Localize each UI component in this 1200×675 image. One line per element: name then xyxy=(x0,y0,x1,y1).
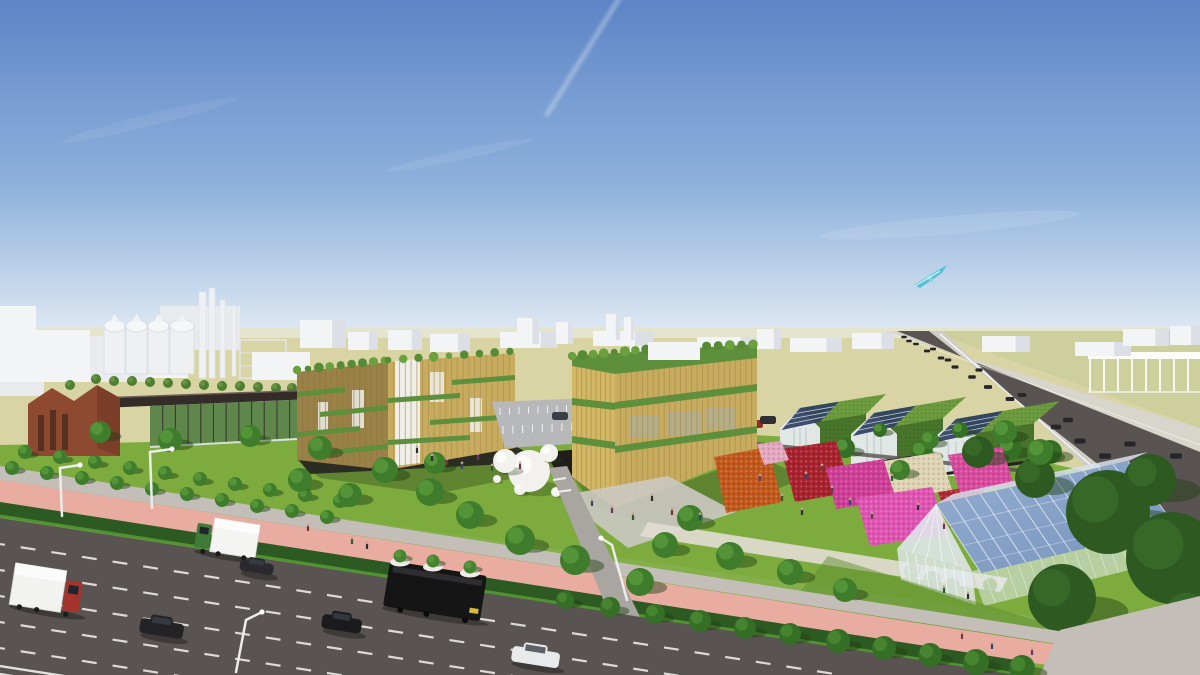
tree-highlight xyxy=(89,456,97,464)
person-head xyxy=(416,446,419,449)
highway-car xyxy=(975,368,982,371)
person xyxy=(591,501,593,506)
person-head xyxy=(591,499,594,502)
terrace-tree xyxy=(236,382,241,387)
person xyxy=(651,496,653,501)
highway-car xyxy=(1099,453,1111,458)
silo xyxy=(170,326,194,374)
roof-shrub xyxy=(325,362,334,371)
roof-shrub xyxy=(476,350,484,358)
roof-shrub xyxy=(578,350,588,360)
roof-shrub xyxy=(399,355,407,363)
highway-car xyxy=(1006,397,1015,401)
tree-highlight xyxy=(286,505,294,513)
terrace-tree xyxy=(200,381,205,386)
tree-highlight xyxy=(321,511,329,519)
tree-highlight xyxy=(111,477,119,485)
highway-car xyxy=(906,340,912,342)
person-head xyxy=(961,632,964,635)
highway-car xyxy=(945,359,952,362)
person xyxy=(967,594,969,599)
background-building-shade xyxy=(541,332,558,348)
person-head xyxy=(632,513,635,516)
person xyxy=(1031,650,1033,655)
person-head xyxy=(821,464,824,467)
highway-car xyxy=(938,357,944,360)
roof-shrub xyxy=(748,339,757,348)
sphere-highlight xyxy=(494,476,498,480)
person xyxy=(781,496,783,501)
tree-highlight xyxy=(507,527,524,544)
tree-highlight xyxy=(1029,441,1043,455)
person xyxy=(943,524,945,529)
person-head xyxy=(1031,648,1034,651)
background-building-shade xyxy=(568,322,573,344)
tree-highlight xyxy=(251,500,259,508)
terrace-tree xyxy=(288,384,293,389)
terrace-tree xyxy=(218,382,223,387)
background-building-shade xyxy=(532,318,539,344)
tree-highlight xyxy=(964,438,982,456)
tree-highlight xyxy=(41,467,49,475)
person xyxy=(366,544,368,549)
roof-shrub xyxy=(490,348,499,357)
person xyxy=(307,526,309,531)
highway-car xyxy=(1063,418,1073,422)
person xyxy=(871,514,873,519)
roof-shrub xyxy=(369,357,378,366)
roof-shrub xyxy=(599,348,609,358)
background-building-shade xyxy=(1191,326,1200,345)
person xyxy=(416,448,418,453)
sky xyxy=(0,0,1200,340)
sphere-highlight xyxy=(552,488,557,493)
person xyxy=(961,634,963,639)
sphere-highlight xyxy=(516,485,521,490)
person xyxy=(351,539,353,544)
tree-highlight xyxy=(394,550,401,557)
background-building-shade xyxy=(881,333,894,349)
tree-highlight xyxy=(310,438,323,451)
person-head xyxy=(943,586,946,589)
tree-highlight xyxy=(91,423,103,435)
background-building-shade xyxy=(1155,329,1169,346)
tower-column xyxy=(220,300,225,378)
lamp-head xyxy=(169,446,174,451)
highway-car xyxy=(968,375,976,378)
roof-shrub xyxy=(337,361,345,369)
roof-shrub xyxy=(568,352,576,360)
tree-highlight xyxy=(194,473,202,481)
person xyxy=(991,644,993,649)
highway-car xyxy=(1124,441,1135,446)
roof-shrub xyxy=(314,363,324,373)
roof-shrub xyxy=(460,350,469,359)
roof-shrub xyxy=(385,357,392,364)
tree-highlight xyxy=(458,503,473,518)
tree-highlight xyxy=(1011,657,1025,671)
person xyxy=(917,505,919,510)
roof-shrub xyxy=(737,341,745,349)
tower-column xyxy=(209,288,215,378)
sphere-highlight xyxy=(496,452,507,463)
sphere-highlight xyxy=(542,446,550,454)
person xyxy=(831,488,833,493)
highway-car xyxy=(913,343,919,346)
person-head xyxy=(431,454,434,457)
person-head xyxy=(991,642,994,645)
background-building-shade xyxy=(774,329,781,349)
tower-column xyxy=(232,306,236,376)
person xyxy=(805,474,807,479)
person xyxy=(431,456,433,461)
person-head xyxy=(849,498,852,501)
person-head xyxy=(801,508,804,511)
person xyxy=(611,508,613,513)
person-head xyxy=(759,474,762,477)
tree-highlight xyxy=(835,580,848,593)
roof-shrub xyxy=(589,350,598,359)
tree-highlight xyxy=(965,651,979,665)
tree-highlight xyxy=(6,462,14,470)
person xyxy=(943,588,945,593)
highway-car xyxy=(1051,425,1061,430)
silos xyxy=(104,314,194,374)
tree-highlight xyxy=(781,625,793,637)
terrace-tree xyxy=(92,375,97,380)
person-head xyxy=(611,506,614,509)
person-head xyxy=(917,503,920,506)
terrace-tree xyxy=(66,381,71,386)
tree-highlight xyxy=(427,555,434,562)
glass-interior xyxy=(630,415,660,437)
tree-highlight xyxy=(691,612,703,624)
highway-car xyxy=(901,336,906,338)
tree-highlight xyxy=(953,423,962,432)
background-building-shade xyxy=(332,320,346,348)
tree-highlight xyxy=(828,631,841,644)
silo xyxy=(126,326,147,374)
tree-highlight xyxy=(124,462,132,470)
silo xyxy=(104,326,125,374)
tree-highlight xyxy=(1133,519,1184,570)
rooftop-plant-room xyxy=(648,342,700,360)
person-head xyxy=(491,464,494,467)
person-head xyxy=(307,524,310,527)
highway-car xyxy=(1170,453,1182,458)
person-head xyxy=(699,513,702,516)
roof-shrub xyxy=(620,346,630,356)
person-head xyxy=(651,494,654,497)
person xyxy=(821,466,823,471)
tree-highlight xyxy=(995,422,1008,435)
person xyxy=(759,476,761,481)
highway-car xyxy=(930,348,936,351)
sky-gradient xyxy=(0,0,1200,340)
roof-shrub xyxy=(611,349,618,356)
background-building-shade xyxy=(1016,336,1030,352)
lamp-head xyxy=(259,609,264,614)
tree-highlight xyxy=(1128,458,1157,487)
person-head xyxy=(891,474,894,477)
windshield xyxy=(199,527,209,535)
tree-highlight xyxy=(181,488,189,496)
tree-highlight xyxy=(679,507,693,521)
tree-highlight xyxy=(76,472,84,480)
roof-shrub xyxy=(305,366,311,372)
person xyxy=(671,510,673,515)
person-head xyxy=(871,512,874,515)
background-building-shade xyxy=(458,334,470,352)
tree-highlight xyxy=(736,619,748,631)
highway-car xyxy=(1018,393,1027,397)
highway-car xyxy=(1074,439,1085,444)
background-building-shade xyxy=(369,332,378,350)
tree-highlight xyxy=(920,645,933,658)
tree-highlight xyxy=(160,430,173,443)
silo xyxy=(148,326,169,374)
person xyxy=(632,515,634,520)
tree-highlight xyxy=(779,561,793,575)
tree-highlight xyxy=(647,606,658,617)
person-head xyxy=(477,453,480,456)
tree-highlight xyxy=(464,561,471,568)
tree-highlight xyxy=(557,592,567,602)
roof-shrub xyxy=(702,342,711,351)
person-head xyxy=(519,462,522,465)
person xyxy=(446,460,448,465)
parked-car xyxy=(760,416,776,424)
tree-highlight xyxy=(718,544,733,559)
terrace-tree xyxy=(182,380,187,385)
person xyxy=(461,464,463,469)
person-head xyxy=(671,508,674,511)
tree-highlight xyxy=(628,570,643,585)
person-head xyxy=(461,462,464,465)
roof-shrub xyxy=(506,348,513,355)
lamp-head xyxy=(77,462,82,467)
glass-interior xyxy=(706,408,736,430)
terrace-tree xyxy=(146,378,151,383)
terrace-tree xyxy=(128,377,133,382)
background-building-shade xyxy=(616,314,620,340)
lamp-head xyxy=(598,535,603,540)
tree-highlight xyxy=(229,478,237,486)
roof-shrub xyxy=(725,340,735,350)
tree-highlight xyxy=(1033,569,1070,606)
tree-highlight xyxy=(159,467,167,475)
tree-highlight xyxy=(241,427,253,439)
highway-car xyxy=(952,365,959,368)
person xyxy=(801,510,803,515)
tree-highlight xyxy=(19,446,27,454)
terrace-tree xyxy=(254,383,259,388)
highway-car xyxy=(984,385,992,389)
person-head xyxy=(446,458,449,461)
roof-shrub xyxy=(429,352,439,362)
person-head xyxy=(831,486,834,489)
roof-shrub xyxy=(714,341,723,350)
tree-highlight xyxy=(654,534,668,548)
tree-highlight xyxy=(602,599,613,610)
terrace-tree xyxy=(164,379,169,384)
person-head xyxy=(781,494,784,497)
person xyxy=(519,464,521,469)
person xyxy=(491,466,493,471)
tree-highlight xyxy=(892,462,903,473)
tree-highlight xyxy=(216,494,224,502)
person xyxy=(849,500,851,505)
background-building-shade xyxy=(412,330,422,350)
terrace-tree xyxy=(272,384,277,389)
background-building-shade xyxy=(826,338,842,352)
terrace-tree xyxy=(110,377,115,382)
person-head xyxy=(967,592,970,595)
parked-car xyxy=(552,412,568,420)
tree-highlight xyxy=(340,485,353,498)
tower-column xyxy=(199,292,206,378)
tree-highlight xyxy=(54,451,62,459)
tree-highlight xyxy=(922,432,932,442)
roof-shrub xyxy=(347,360,356,369)
windshield xyxy=(68,585,79,595)
roof-shrub xyxy=(358,358,367,367)
person-head xyxy=(805,472,808,475)
tree-highlight xyxy=(1072,476,1118,522)
tree-highlight xyxy=(874,638,887,651)
roof-shrub xyxy=(446,352,453,359)
person xyxy=(699,515,701,520)
person xyxy=(891,476,893,481)
person-head xyxy=(366,542,369,545)
rendering-canvas xyxy=(0,0,1200,675)
person-head xyxy=(351,537,354,540)
roof-shrub xyxy=(414,354,422,362)
person-head xyxy=(943,522,946,525)
tree-highlight xyxy=(874,424,882,432)
tree-highlight xyxy=(562,547,579,564)
roof-shrub xyxy=(293,366,301,374)
campus-aerial-rendering xyxy=(0,0,1200,675)
tree-highlight xyxy=(374,459,388,473)
tree-highlight xyxy=(290,470,303,483)
roof-shrub xyxy=(631,346,640,355)
tree-highlight xyxy=(264,484,272,492)
background-building-shade xyxy=(631,317,634,340)
person xyxy=(477,455,479,460)
highway-car xyxy=(924,350,930,353)
tree-highlight xyxy=(418,480,433,495)
